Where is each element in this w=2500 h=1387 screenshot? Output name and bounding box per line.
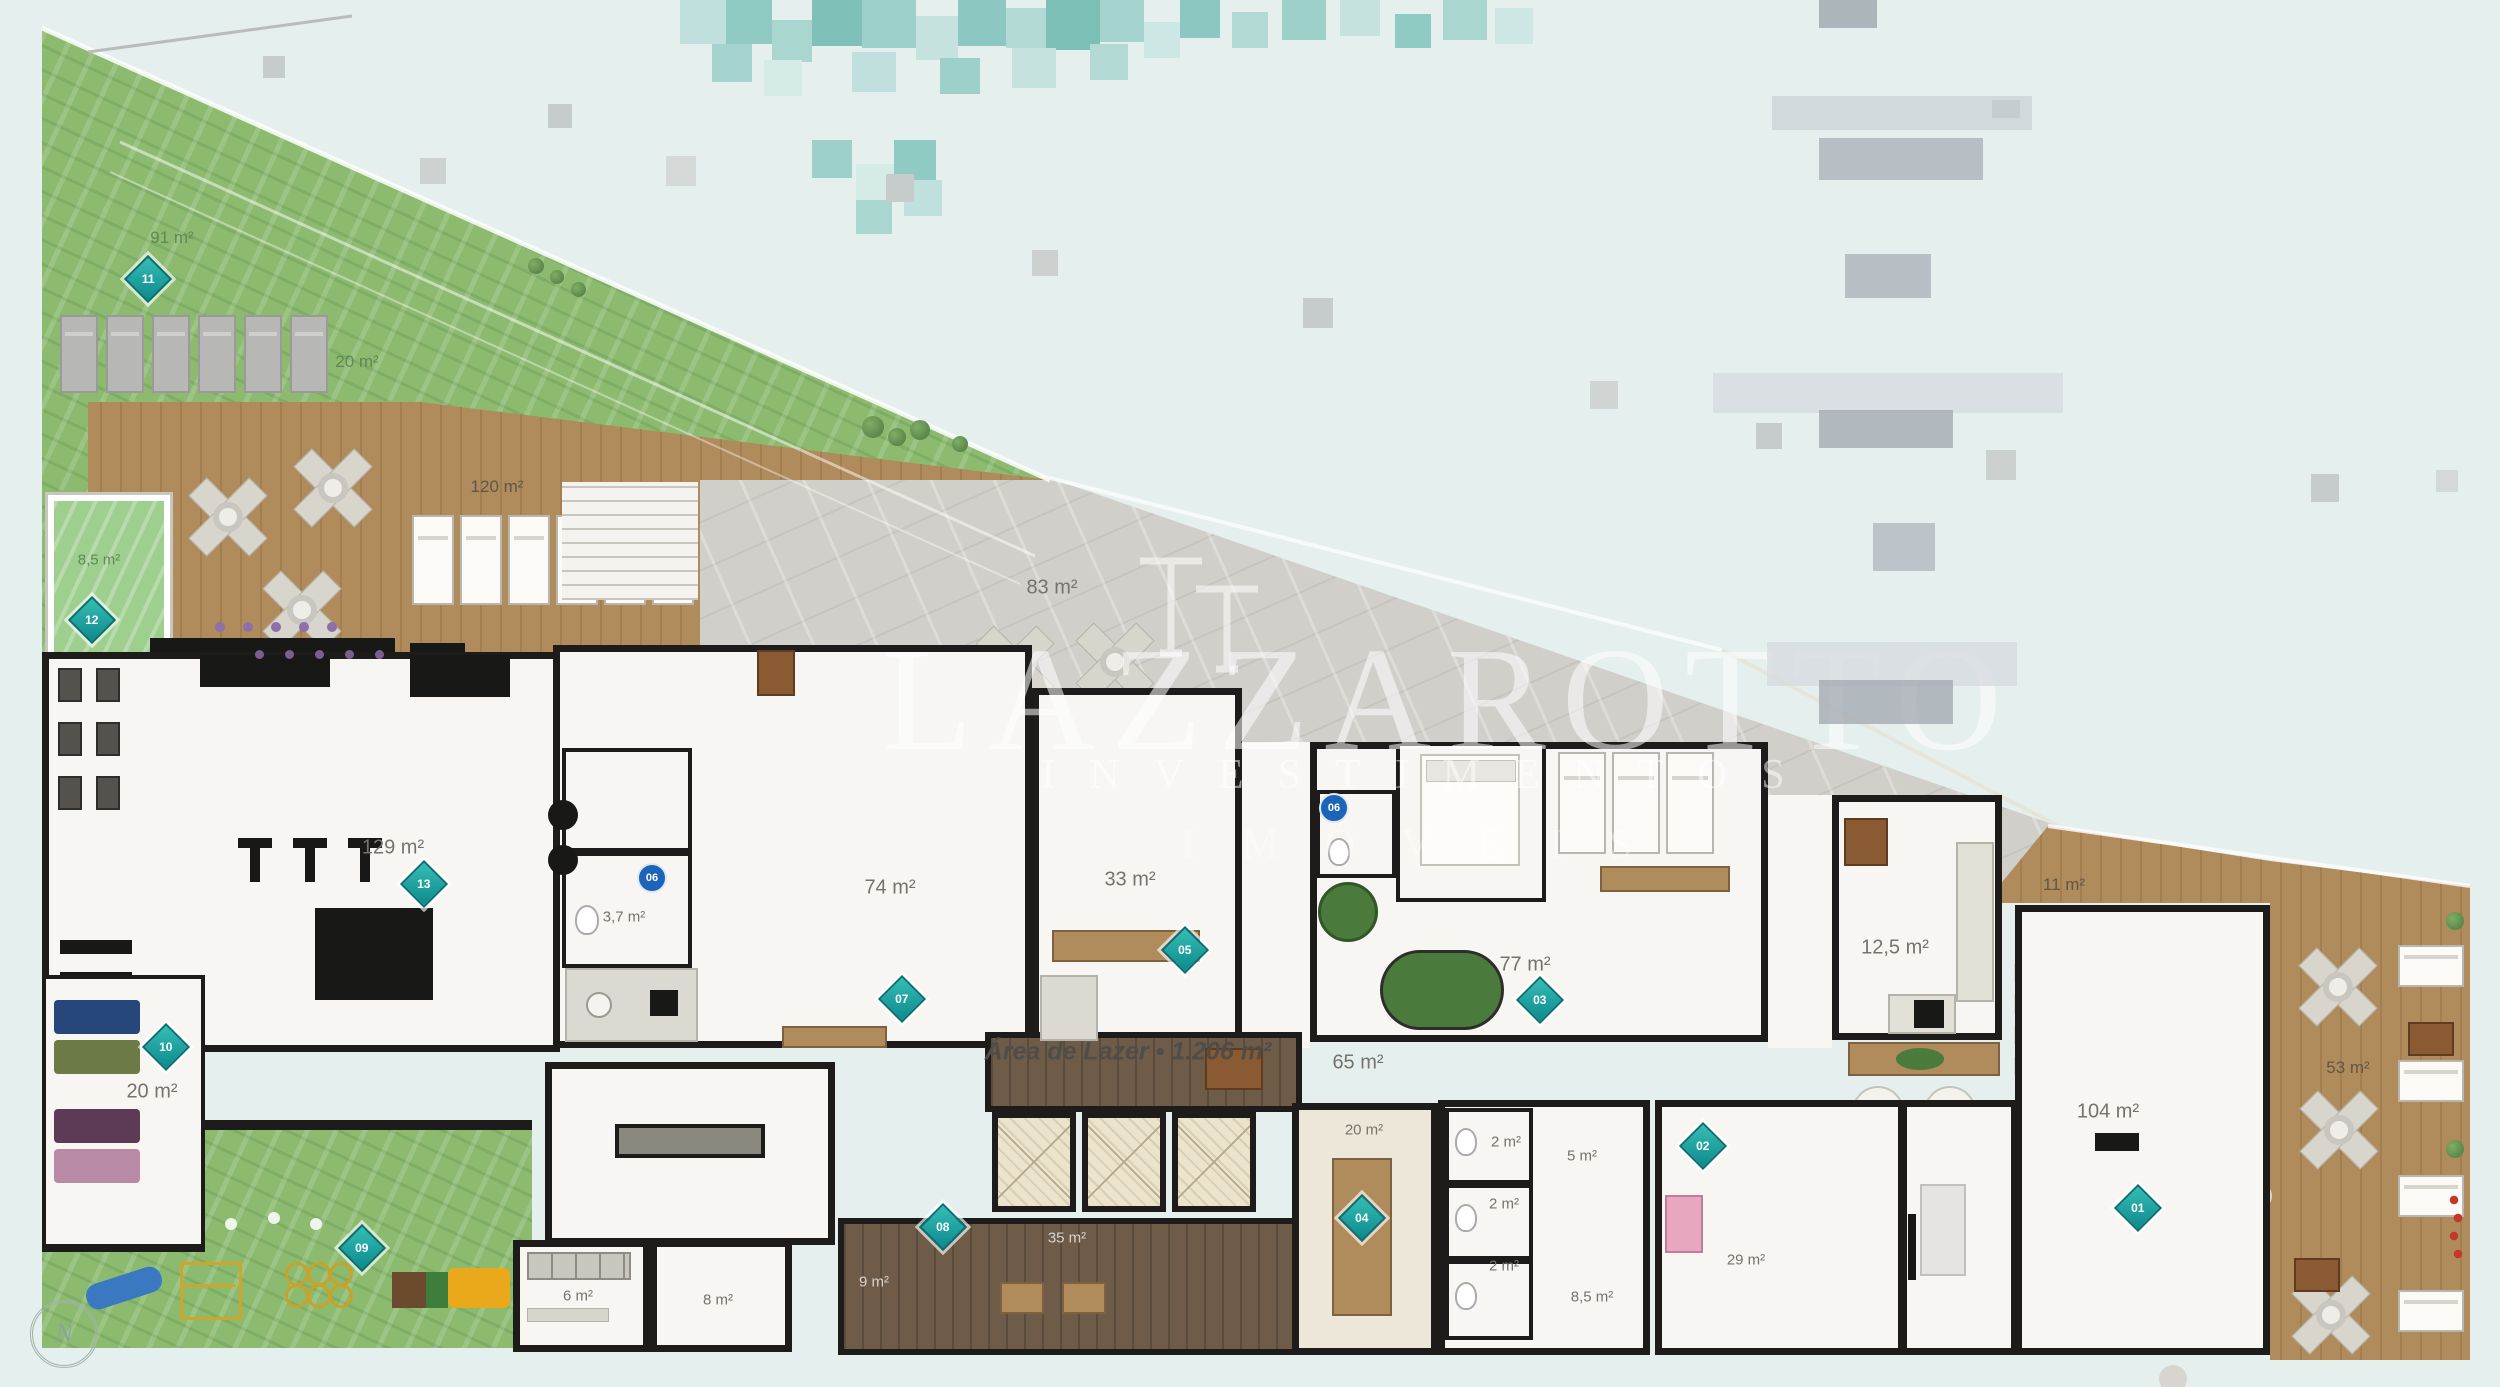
mosaic-block xyxy=(772,20,812,62)
shrub xyxy=(2446,912,2464,930)
sauna-bench xyxy=(1666,752,1714,854)
gym-cabinet xyxy=(410,655,510,697)
mosaic-block xyxy=(726,0,772,44)
sauna-bench xyxy=(1558,752,1606,854)
terrace-steps xyxy=(562,482,698,600)
cabinet xyxy=(757,650,795,696)
toilet xyxy=(1328,838,1350,866)
yoga-mat-blue xyxy=(54,1000,140,1034)
flower xyxy=(225,1218,237,1230)
room-vestibule xyxy=(562,748,692,852)
censored-text-bar xyxy=(1873,523,1935,571)
mosaic-block xyxy=(856,200,892,234)
gym-mat xyxy=(315,908,433,1000)
table-runner xyxy=(1896,1048,1944,1070)
mosaic-block xyxy=(1180,0,1220,38)
censored-text-bar xyxy=(1819,138,1983,180)
room-banquet-hall xyxy=(2015,905,2270,1355)
play-ring xyxy=(307,1284,331,1308)
label-plan-title: Área de Lazer • 1.206 m² xyxy=(985,1038,1272,1067)
toilet xyxy=(1455,1204,1477,1232)
play-ring xyxy=(329,1262,353,1286)
label-deck-right-area: 53 m² xyxy=(2326,1058,2369,1078)
mosaic-block xyxy=(1282,0,1326,40)
label-terrace-area: 83 m² xyxy=(1026,577,1077,600)
lounger-white xyxy=(2398,1290,2464,1332)
mosaic-block xyxy=(764,60,802,96)
spin-bike xyxy=(238,838,272,848)
umbrella-table xyxy=(2296,1087,2382,1173)
games-bar xyxy=(1600,866,1730,892)
card-table xyxy=(1318,882,1378,942)
yoga-mat-pink xyxy=(54,1149,140,1183)
label-yoga-area: 20 m² xyxy=(126,1081,177,1104)
lounger-gray xyxy=(152,315,190,393)
label-circulation-area: 65 m² xyxy=(1332,1052,1383,1075)
gym-tv-cabinet xyxy=(200,655,330,687)
tv xyxy=(1908,1214,1916,1280)
mosaic-block xyxy=(1232,12,1268,48)
lounger-white xyxy=(508,515,550,605)
spin-bike xyxy=(250,848,260,882)
mosaic-block xyxy=(812,140,852,178)
weight-machine xyxy=(96,776,120,810)
play-kitchen xyxy=(1665,1195,1703,1253)
pixel-square xyxy=(548,104,572,128)
elevator xyxy=(1082,1112,1166,1212)
lounger-gray xyxy=(198,315,236,393)
toilet xyxy=(575,905,599,935)
pixel-square xyxy=(420,158,446,184)
label-sauna-area: 20 m² xyxy=(1345,1122,1383,1139)
yoga-mat-plum xyxy=(54,1109,140,1143)
barbell-rack xyxy=(60,940,132,954)
umbrella-table xyxy=(185,474,271,560)
play-ring xyxy=(285,1284,309,1308)
corridor xyxy=(1242,742,1310,1048)
wall xyxy=(42,1244,205,1252)
yoga-mat-olive xyxy=(54,1040,140,1074)
toilet xyxy=(1455,1128,1477,1156)
styling-table xyxy=(1000,1282,1044,1314)
mosaic-block xyxy=(1495,8,1533,44)
side-table xyxy=(548,845,578,875)
marker-wc-gym: 06 xyxy=(637,863,667,893)
sideboard xyxy=(782,1026,887,1048)
mosaic-block xyxy=(1144,22,1180,58)
mosaic-block xyxy=(812,0,862,46)
side-table xyxy=(548,800,578,830)
pixel-square xyxy=(1032,250,1058,276)
mosaic-block xyxy=(916,16,958,60)
lounger-white xyxy=(460,515,502,605)
mosaic-block xyxy=(1395,14,1431,48)
label-wc1-area: 2 m² xyxy=(1491,1134,1521,1151)
bench xyxy=(527,1308,609,1322)
play-ring xyxy=(307,1262,331,1286)
sink xyxy=(586,992,612,1018)
label-games-area: 77 m² xyxy=(1499,954,1550,977)
spin-bike xyxy=(305,848,315,882)
planter-box xyxy=(2408,1022,2454,1056)
mosaic-block xyxy=(1006,8,1046,48)
spin-bike xyxy=(293,838,327,848)
wall xyxy=(205,1120,532,1130)
marker-wc-games: 06 xyxy=(1319,793,1349,823)
label-lawn-area: 91 m² xyxy=(150,228,193,248)
censored-text-bar xyxy=(1713,373,2063,413)
label-wc5-area: 5 m² xyxy=(1567,1148,1597,1165)
shrub xyxy=(888,428,906,446)
weight-machine xyxy=(58,668,82,702)
sauna-bench xyxy=(1612,752,1660,854)
lockers xyxy=(527,1252,631,1280)
glassware xyxy=(243,622,253,632)
label-kids-area: 29 m² xyxy=(1727,1252,1765,1269)
kitchen-counter xyxy=(565,968,698,1042)
label-wc2-area: 2 m² xyxy=(1489,1196,1519,1213)
pillows xyxy=(1426,760,1516,782)
mosaic-block xyxy=(1012,48,1056,88)
label-banquet-area: 104 m² xyxy=(2077,1101,2139,1124)
elevator xyxy=(992,1112,1076,1212)
lounger-white xyxy=(412,515,454,605)
toilet xyxy=(1455,1282,1477,1310)
dumbbell xyxy=(315,650,324,659)
mosaic-block xyxy=(1340,0,1380,36)
mosaic-block xyxy=(1046,0,1100,50)
glassware xyxy=(299,622,309,632)
floor-plan-canvas: 91 m² 20 m² 120 m² 8,5 m² 83 m² 129 m² 2… xyxy=(0,0,2500,1387)
shrub xyxy=(571,282,586,297)
pixel-square xyxy=(1986,450,2016,480)
climbing-frame-bar xyxy=(180,1284,236,1287)
glassware xyxy=(215,622,225,632)
label-storage8-area: 8 m² xyxy=(703,1292,733,1309)
weight-machine xyxy=(58,722,82,756)
shrub xyxy=(528,258,544,274)
censored-text-bar xyxy=(1819,0,1877,28)
label-storage6-area: 6 m² xyxy=(563,1288,593,1305)
label-deck11-area: 11 m² xyxy=(2043,875,2085,895)
pixel-square xyxy=(666,156,696,186)
pixel-square xyxy=(2311,474,2339,502)
play-train xyxy=(392,1272,426,1308)
counter xyxy=(1956,842,1994,1002)
weight-machine xyxy=(58,776,82,810)
compass-north: N xyxy=(30,1300,98,1368)
buffet xyxy=(2095,1133,2139,1151)
censored-text-bar xyxy=(1819,680,1953,724)
mosaic-block xyxy=(712,44,752,82)
styling-table xyxy=(1062,1282,1106,1314)
dumbbell xyxy=(255,650,264,659)
cabinet xyxy=(1844,818,1888,866)
label-gourmet-area: 33 m² xyxy=(1104,869,1155,892)
dumbbell xyxy=(375,650,384,659)
label-gym-area: 129 m² xyxy=(362,837,424,860)
mosaic-block xyxy=(852,52,896,92)
pixel-square xyxy=(1756,423,1782,449)
mosaic-block xyxy=(1090,44,1128,80)
kitchenette xyxy=(1040,975,1098,1041)
poker-table xyxy=(1380,950,1504,1030)
coffee-table xyxy=(1920,1184,1966,1276)
mosaic-block xyxy=(862,0,916,48)
censored-text-bar xyxy=(1992,100,2020,118)
lounger-white xyxy=(2398,945,2464,987)
mosaic-block xyxy=(1100,0,1144,42)
label-wc3-area: 2 m² xyxy=(1489,1258,1519,1275)
shrub xyxy=(862,416,884,438)
label-party-hall-area: 74 m² xyxy=(864,877,915,900)
planter-box xyxy=(2294,1258,2340,1292)
pixel-square xyxy=(263,56,285,78)
play-ring xyxy=(285,1262,309,1286)
dumbbell xyxy=(345,650,354,659)
stairs-rail xyxy=(615,1124,765,1158)
glassware xyxy=(327,622,337,632)
label-sun-lawn-area: 20 m² xyxy=(335,352,378,372)
lounger-gray xyxy=(60,315,98,393)
shrub xyxy=(2446,1140,2464,1158)
weight-machine xyxy=(96,668,120,702)
mosaic-block xyxy=(940,58,980,94)
lounger-gray xyxy=(244,315,282,393)
label-salon-area: 35 m² xyxy=(1048,1230,1086,1247)
pixel-square xyxy=(1590,381,1618,409)
shrub xyxy=(910,420,930,440)
lounger-white xyxy=(2398,1060,2464,1102)
umbrella-table xyxy=(290,445,376,531)
play-train xyxy=(426,1272,448,1308)
label-deck-area: 120 m² xyxy=(471,477,524,497)
weight-machine xyxy=(96,722,120,756)
label-kitchen-area: 12,5 m² xyxy=(1861,937,1929,960)
stove xyxy=(1914,1000,1944,1028)
pixel-square xyxy=(2436,470,2458,492)
play-ring xyxy=(329,1284,353,1308)
label-corridor9-area: 9 m² xyxy=(859,1274,889,1291)
mosaic-block xyxy=(1443,0,1487,40)
pixel-square xyxy=(1303,298,1333,328)
play-slide xyxy=(448,1268,510,1308)
mosaic-block xyxy=(958,0,1006,46)
flower xyxy=(310,1218,322,1230)
mosaic-block xyxy=(680,0,726,44)
corridor xyxy=(1768,795,1832,1048)
pixel-square xyxy=(886,174,914,202)
flower xyxy=(268,1212,280,1224)
censored-text-bar xyxy=(1819,410,1953,448)
label-shower-area: 8,5 m² xyxy=(1571,1289,1614,1306)
dumbbell xyxy=(285,650,294,659)
climbing-frame xyxy=(180,1262,242,1320)
lounger-gray xyxy=(106,315,144,393)
shrub xyxy=(952,436,968,452)
label-wc-gym-area: 3,7 m² xyxy=(603,909,646,926)
flower-strip-red xyxy=(2448,1192,2466,1276)
censored-text-bar xyxy=(1845,254,1931,298)
stove xyxy=(650,990,678,1016)
lounger-gray xyxy=(290,315,328,393)
glassware xyxy=(271,622,281,632)
shrub xyxy=(550,270,564,284)
elevator xyxy=(1172,1112,1256,1212)
umbrella-table xyxy=(2295,944,2381,1030)
label-kids-pool-area: 8,5 m² xyxy=(78,552,121,569)
